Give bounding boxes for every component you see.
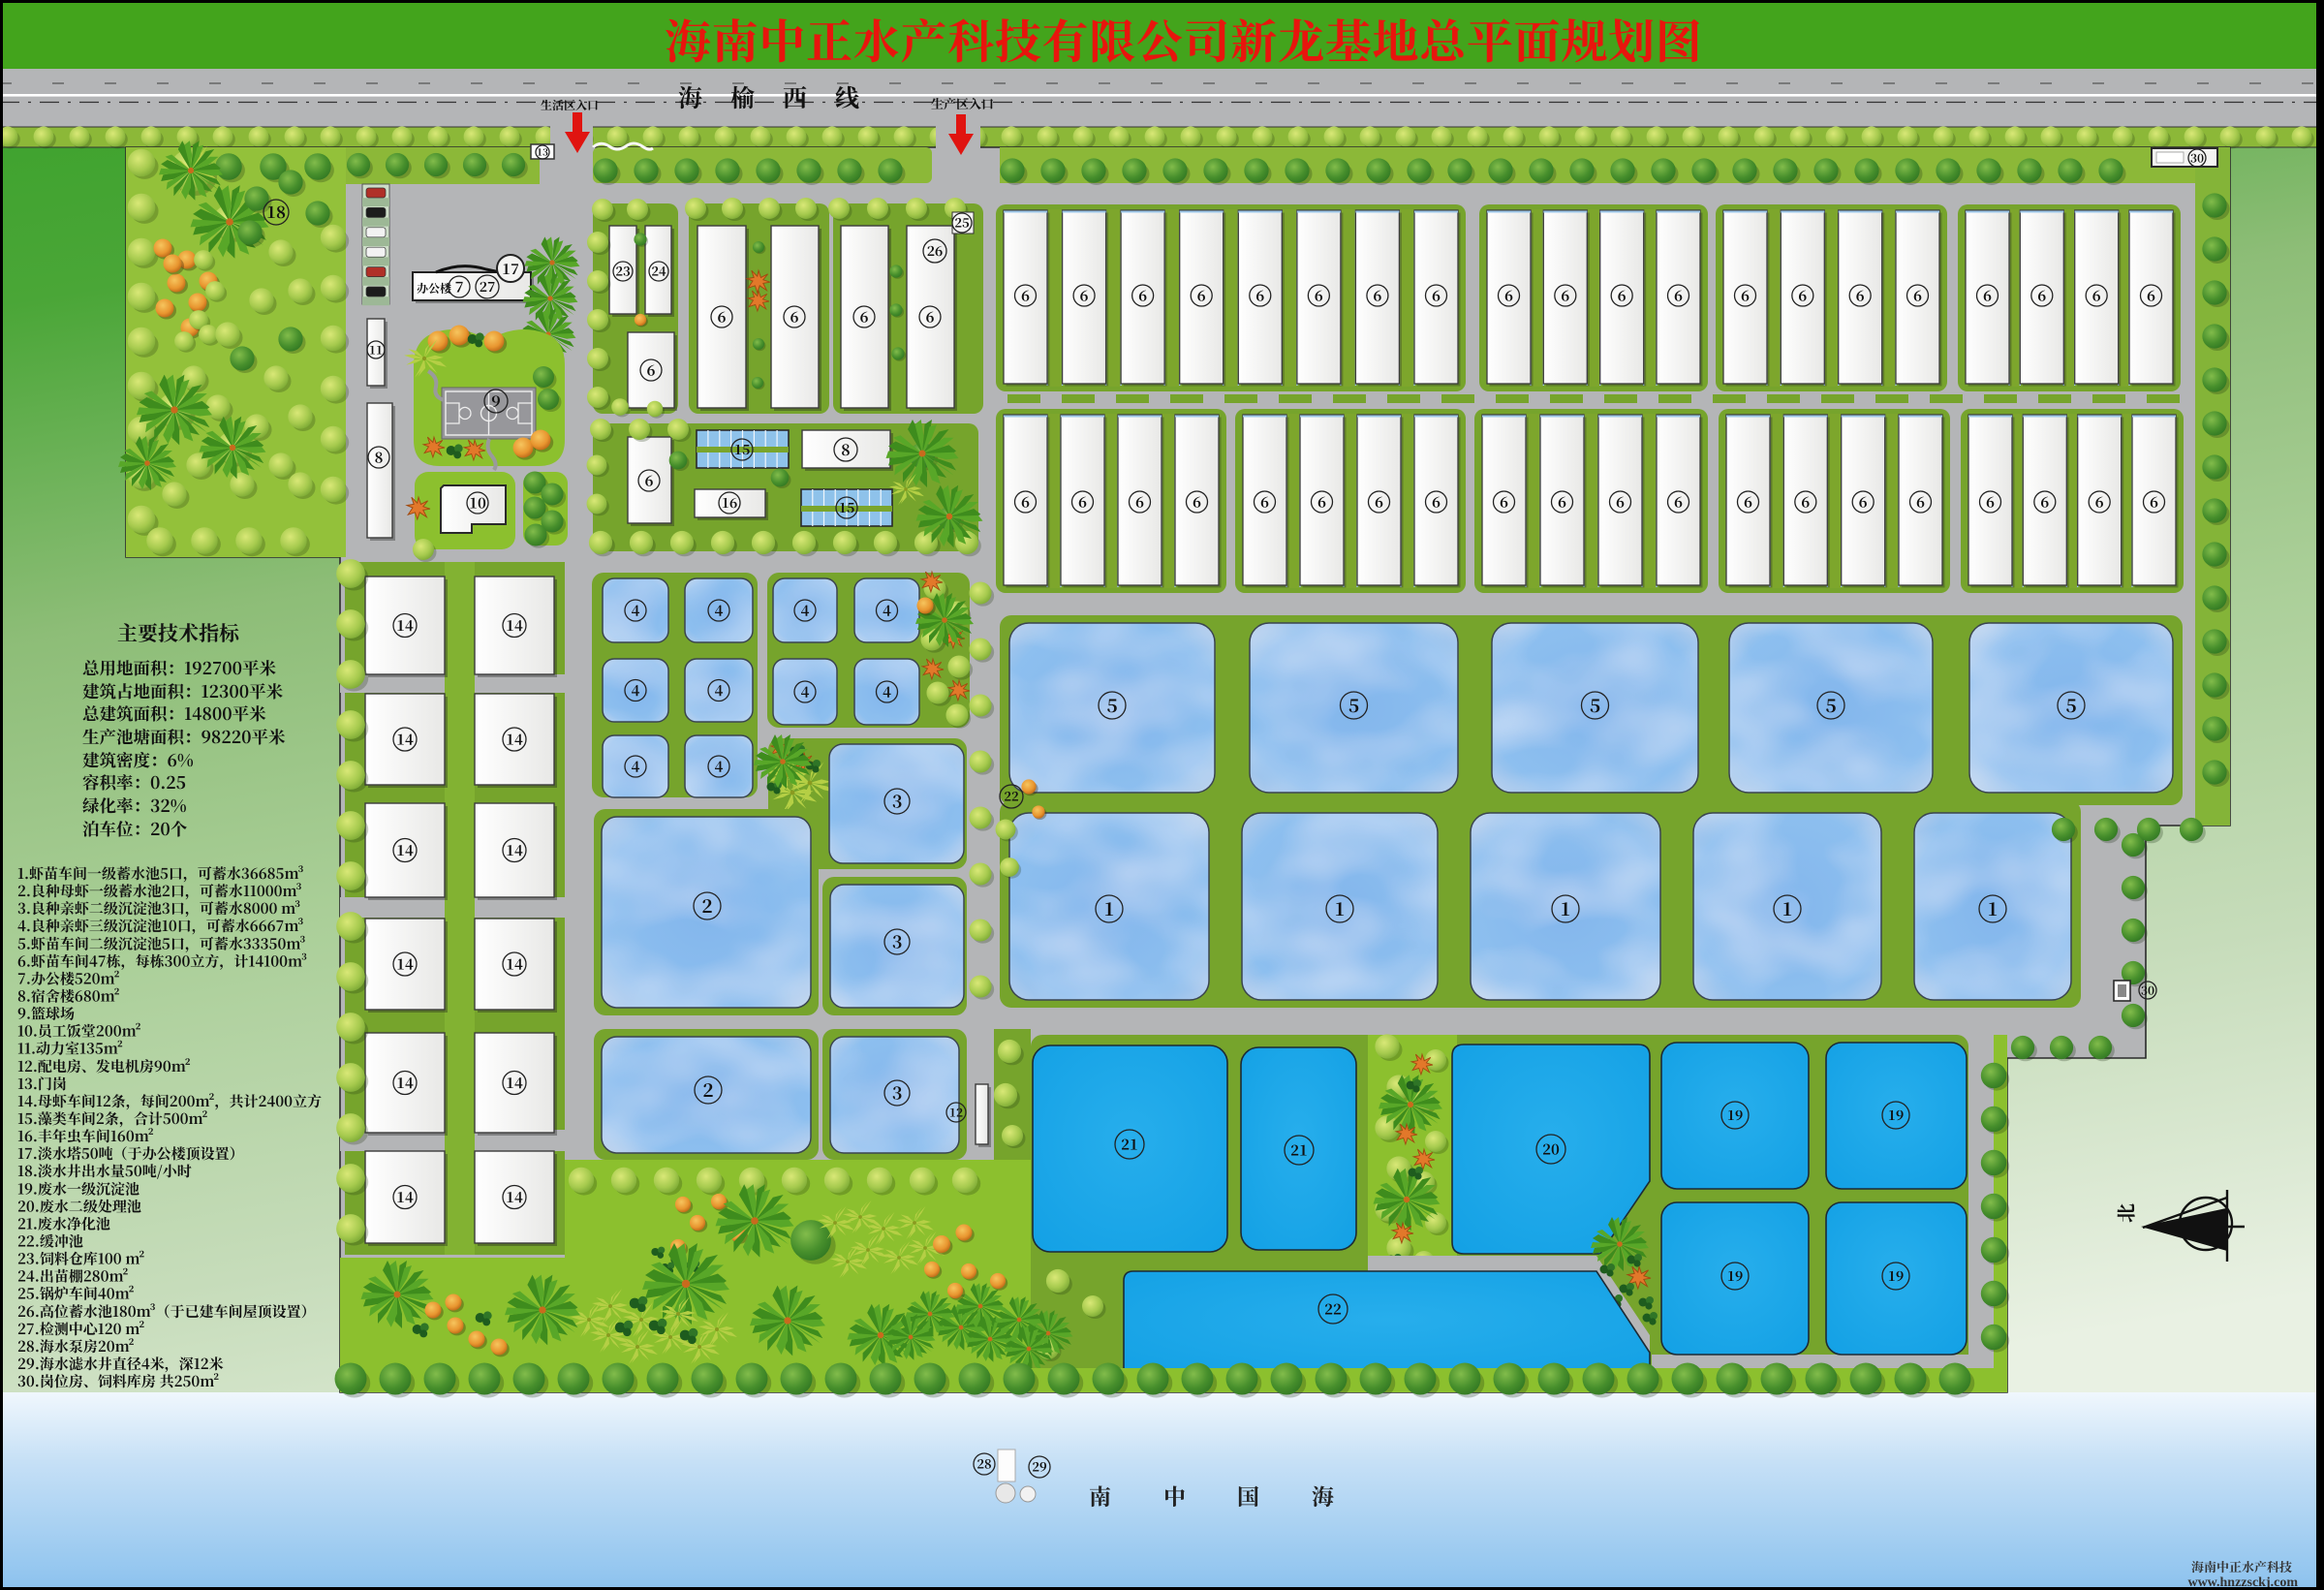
svg-text:20: 20 [1542, 1138, 1560, 1159]
svg-text:6: 6 [1913, 285, 1922, 305]
svg-text:6: 6 [2040, 491, 2049, 512]
svg-text:6: 6 [1859, 491, 1868, 512]
svg-text:6: 6 [1561, 285, 1569, 305]
svg-text:6: 6 [1500, 491, 1508, 512]
svg-text:6: 6 [1504, 285, 1513, 305]
svg-text:14: 14 [396, 953, 414, 974]
svg-text:4: 4 [715, 680, 724, 701]
svg-text:绿化率：32%: 绿化率：32% [82, 794, 187, 818]
svg-text:6: 6 [645, 470, 654, 490]
svg-text:30: 30 [2141, 982, 2154, 998]
svg-text:30.岗位房、饲料库房 共250m²: 30.岗位房、饲料库房 共250m² [17, 1371, 219, 1391]
svg-text:4: 4 [801, 681, 810, 701]
svg-text:6: 6 [1801, 491, 1810, 512]
svg-text:3: 3 [892, 1079, 903, 1105]
svg-text:6: 6 [1744, 491, 1752, 512]
svg-text:30: 30 [2190, 149, 2204, 166]
svg-text:6: 6 [1078, 491, 1087, 512]
svg-text:容积率：0.25: 容积率：0.25 [82, 770, 186, 795]
svg-text:25: 25 [954, 213, 970, 232]
svg-text:9: 9 [491, 390, 500, 412]
svg-text:6: 6 [1432, 285, 1441, 305]
svg-text:6: 6 [1618, 285, 1627, 305]
svg-text:3: 3 [892, 928, 903, 953]
svg-text:14: 14 [506, 953, 523, 974]
svg-text:6: 6 [926, 306, 935, 327]
svg-text:泊车位：20个: 泊车位：20个 [82, 817, 188, 841]
svg-text:生产池塘面积：98220平米: 生产池塘面积：98220平米 [82, 725, 286, 749]
svg-text:24: 24 [651, 262, 666, 280]
svg-text:14: 14 [396, 729, 414, 749]
svg-text:北: 北 [2111, 1203, 2139, 1223]
svg-text:6: 6 [1135, 491, 1144, 512]
svg-text:8: 8 [841, 438, 850, 460]
svg-text:1: 1 [1987, 895, 1998, 921]
svg-text:19: 19 [1727, 1106, 1744, 1125]
svg-text:4: 4 [883, 600, 891, 620]
svg-text:29: 29 [1032, 1457, 1047, 1476]
svg-text:1: 1 [1334, 895, 1345, 921]
svg-text:1: 1 [1782, 895, 1792, 921]
svg-text:3: 3 [892, 788, 903, 813]
svg-text:6: 6 [1193, 491, 1201, 512]
svg-text:6: 6 [1260, 491, 1269, 512]
svg-text:2: 2 [701, 892, 712, 919]
svg-text:6: 6 [1432, 491, 1441, 512]
svg-text:6: 6 [2095, 491, 2104, 512]
svg-text:28: 28 [976, 1454, 991, 1473]
svg-text:10: 10 [469, 492, 486, 513]
svg-text:6: 6 [1916, 491, 1925, 512]
svg-text:27: 27 [480, 277, 496, 296]
svg-text:22: 22 [1004, 787, 1019, 805]
svg-text:6: 6 [1315, 285, 1323, 305]
svg-text:4: 4 [883, 681, 891, 701]
svg-text:7: 7 [455, 276, 464, 296]
svg-text:南: 南 [1089, 1480, 1111, 1512]
svg-text:8: 8 [375, 447, 384, 467]
svg-text:6: 6 [647, 359, 656, 380]
svg-text:1: 1 [1103, 895, 1114, 921]
svg-text:6: 6 [1138, 285, 1147, 305]
svg-text:14: 14 [506, 840, 523, 860]
svg-text:4: 4 [801, 600, 810, 620]
svg-text:14: 14 [396, 1073, 414, 1093]
svg-text:6: 6 [860, 306, 869, 327]
svg-text:6: 6 [1558, 491, 1566, 512]
svg-text:国: 国 [1237, 1480, 1259, 1512]
svg-text:6: 6 [1374, 285, 1382, 305]
svg-text:生产区入口: 生产区入口 [931, 94, 994, 112]
svg-text:6: 6 [1616, 491, 1625, 512]
svg-text:海南中正水产科技有限公司新龙基地总平面规划图: 海南中正水产科技有限公司新龙基地总平面规划图 [665, 5, 1702, 72]
svg-text:17: 17 [502, 259, 519, 279]
svg-text:建筑密度：6%: 建筑密度：6% [82, 748, 194, 772]
svg-text:6: 6 [1197, 285, 1206, 305]
svg-text:6: 6 [1798, 285, 1807, 305]
svg-text:中: 中 [1163, 1480, 1186, 1512]
svg-text:生活区入口: 生活区入口 [541, 97, 599, 113]
svg-text:14: 14 [506, 729, 523, 749]
svg-text:4: 4 [632, 756, 640, 776]
svg-text:6: 6 [1856, 285, 1865, 305]
svg-text:16: 16 [722, 493, 738, 513]
svg-text:14: 14 [506, 1187, 523, 1207]
svg-text:海南中正水产科技: 海南中正水产科技 [2191, 1557, 2292, 1575]
svg-text:6: 6 [2092, 285, 2101, 305]
svg-text:6: 6 [1674, 491, 1683, 512]
svg-text:5: 5 [1825, 692, 1836, 718]
svg-text:14: 14 [506, 615, 523, 636]
svg-text:4: 4 [632, 680, 640, 701]
svg-text:5: 5 [1106, 692, 1117, 718]
svg-text:21: 21 [1290, 1139, 1308, 1160]
svg-text:5: 5 [1348, 692, 1359, 718]
svg-text:6: 6 [2150, 491, 2158, 512]
svg-text:4: 4 [715, 600, 724, 620]
svg-text:2: 2 [702, 1076, 713, 1103]
svg-text:6: 6 [2147, 285, 2155, 305]
svg-text:海: 海 [1312, 1480, 1334, 1512]
svg-text:14: 14 [506, 1073, 523, 1093]
svg-text:26: 26 [927, 241, 944, 261]
svg-text:6: 6 [1021, 285, 1030, 305]
svg-text:14: 14 [396, 840, 414, 860]
svg-text:1: 1 [1560, 895, 1570, 921]
svg-text:21: 21 [1121, 1134, 1138, 1154]
svg-text:6: 6 [2037, 285, 2046, 305]
svg-text:5: 5 [1590, 692, 1600, 718]
svg-text:6: 6 [1255, 285, 1264, 305]
svg-text:19: 19 [1888, 1106, 1905, 1125]
svg-text:6: 6 [1317, 491, 1326, 512]
svg-text:11: 11 [369, 341, 383, 358]
svg-text:4: 4 [632, 600, 640, 620]
svg-text:14: 14 [396, 615, 414, 636]
svg-text:15: 15 [734, 440, 751, 459]
svg-text:总建筑面积：14800平米: 总建筑面积：14800平米 [82, 701, 266, 726]
svg-text:23: 23 [615, 262, 631, 280]
svg-text:海榆西线: 海榆西线 [678, 79, 887, 114]
svg-text:主要技术指标: 主要技术指标 [117, 618, 241, 647]
svg-text:6: 6 [1986, 491, 1995, 512]
svg-text:6: 6 [1674, 285, 1683, 305]
svg-text:总用地面积：192700平米: 总用地面积：192700平米 [82, 656, 277, 680]
svg-text:6: 6 [718, 306, 727, 327]
svg-text:6: 6 [1741, 285, 1750, 305]
svg-text:5: 5 [2065, 692, 2076, 718]
svg-text:18: 18 [266, 199, 286, 223]
svg-text:15: 15 [839, 498, 855, 517]
svg-text:22: 22 [1324, 1298, 1342, 1319]
svg-text:6: 6 [1375, 491, 1383, 512]
svg-text:19: 19 [1888, 1266, 1905, 1286]
svg-text:14: 14 [396, 1187, 414, 1207]
svg-text:12: 12 [949, 1104, 963, 1120]
svg-text:建筑占地面积：12300平米: 建筑占地面积：12300平米 [82, 679, 284, 703]
svg-text:6: 6 [1983, 285, 1992, 305]
svg-text:6: 6 [790, 306, 799, 327]
svg-text:6: 6 [1080, 285, 1089, 305]
svg-text:19: 19 [1727, 1266, 1744, 1286]
svg-text:办公楼: 办公楼 [417, 280, 452, 296]
svg-text:6: 6 [1021, 491, 1030, 512]
svg-text:13: 13 [537, 144, 548, 159]
svg-text:4: 4 [715, 756, 724, 776]
